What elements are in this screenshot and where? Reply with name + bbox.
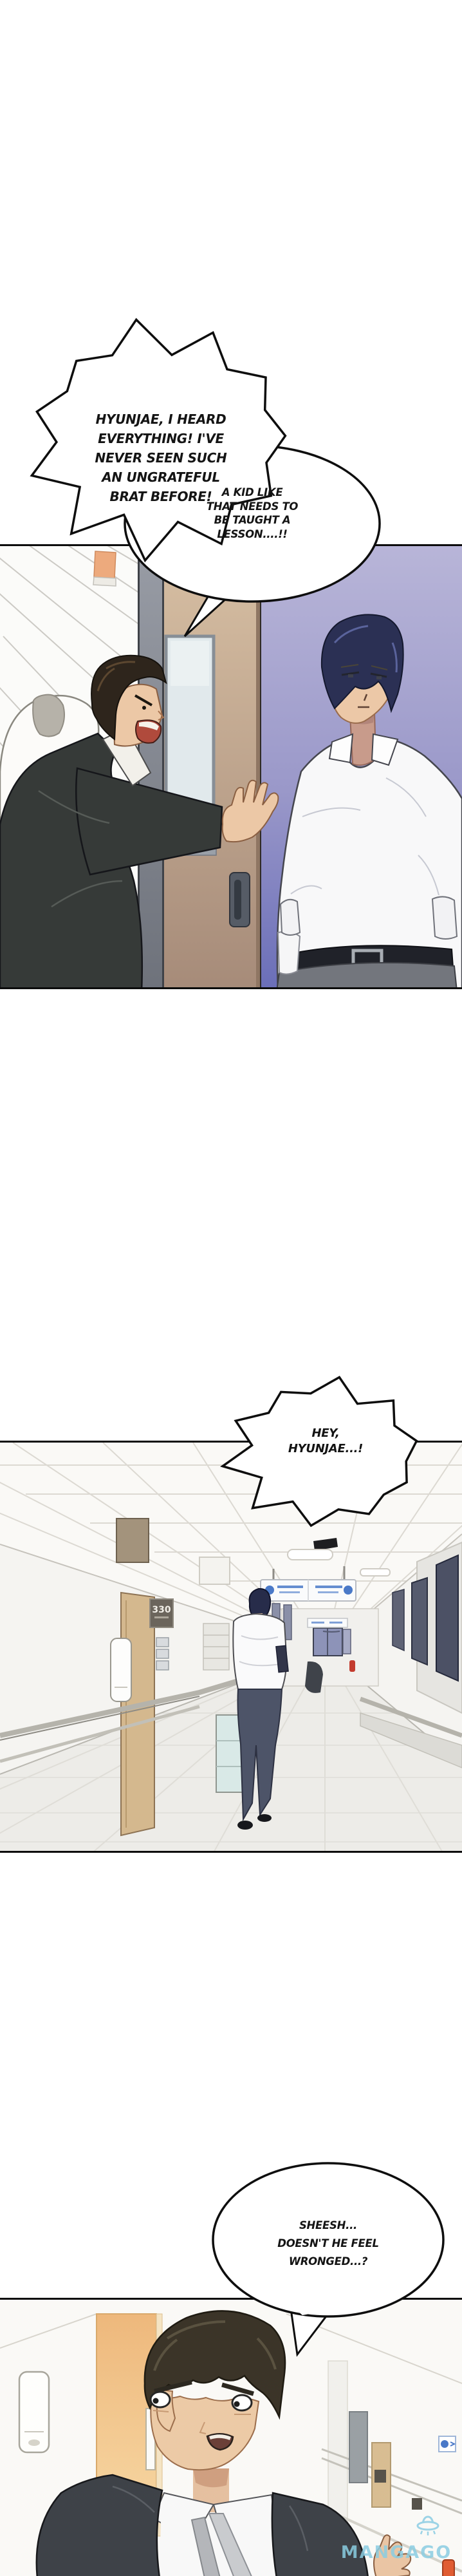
- upper-cabinet: [199, 1557, 230, 1584]
- panel-2-art: 330: [0, 1443, 462, 1853]
- panel-3-art: [0, 2300, 462, 2576]
- walking-man-hair: [250, 1589, 271, 1615]
- sanitizer-dispenser: [111, 1638, 131, 1701]
- panel-1-art: [0, 546, 462, 989]
- carried-folder: [276, 1645, 288, 1672]
- panel-1-hallway-argument: [0, 544, 462, 989]
- far-double-doors: [313, 1628, 351, 1656]
- room-number-text: 330: [152, 1605, 171, 1615]
- panel-2-corridor: 330: [0, 1441, 462, 1853]
- wall-monitor-1: [436, 1555, 458, 1681]
- shoe-left: [237, 1821, 253, 1830]
- speech-bubble-1: [32, 319, 285, 560]
- arrow-icon: [441, 2440, 448, 2448]
- ufo-icon: [414, 2512, 441, 2537]
- second-hanging-sign: [308, 1618, 347, 1627]
- shirt-tail: [278, 932, 300, 974]
- door-handle: [230, 873, 250, 927]
- office-chair: [305, 1662, 323, 1693]
- exit-light: [93, 551, 116, 586]
- speech-bubble-layer: [0, 0, 462, 2576]
- bubble-1-text: HYUNJAE, I HEARD EVERYTHING! I'VE NEVER …: [72, 410, 250, 506]
- grey-door: [349, 2412, 367, 2483]
- old-man-eye: [142, 706, 146, 710]
- wall-monitor-3: [393, 1589, 404, 1651]
- bubble-4-text: SHEESH... DOESN'T HE FEEL WRONGED...?: [241, 2217, 416, 2271]
- cuff-right: [432, 896, 457, 939]
- bulletin-board: [116, 1519, 149, 1562]
- door-sign-2: [412, 2498, 422, 2510]
- site-watermark: MANGAGO: [333, 2543, 459, 2562]
- bubble-2-text: A KID LIKE THAT NEEDS TO BE TAUGHT A LES…: [166, 486, 338, 541]
- cuff-left: [281, 900, 300, 935]
- wall-dispenser: [19, 2372, 49, 2452]
- fire-extinguisher: [349, 1660, 355, 1672]
- shoe-right: [257, 1814, 272, 1822]
- panel-3-reaction: [0, 2298, 462, 2576]
- door-sign-1: [374, 2470, 386, 2483]
- wall-monitor-2: [412, 1578, 427, 1665]
- comic-page: 330: [0, 0, 462, 2576]
- sign-icon-right: [344, 1586, 353, 1595]
